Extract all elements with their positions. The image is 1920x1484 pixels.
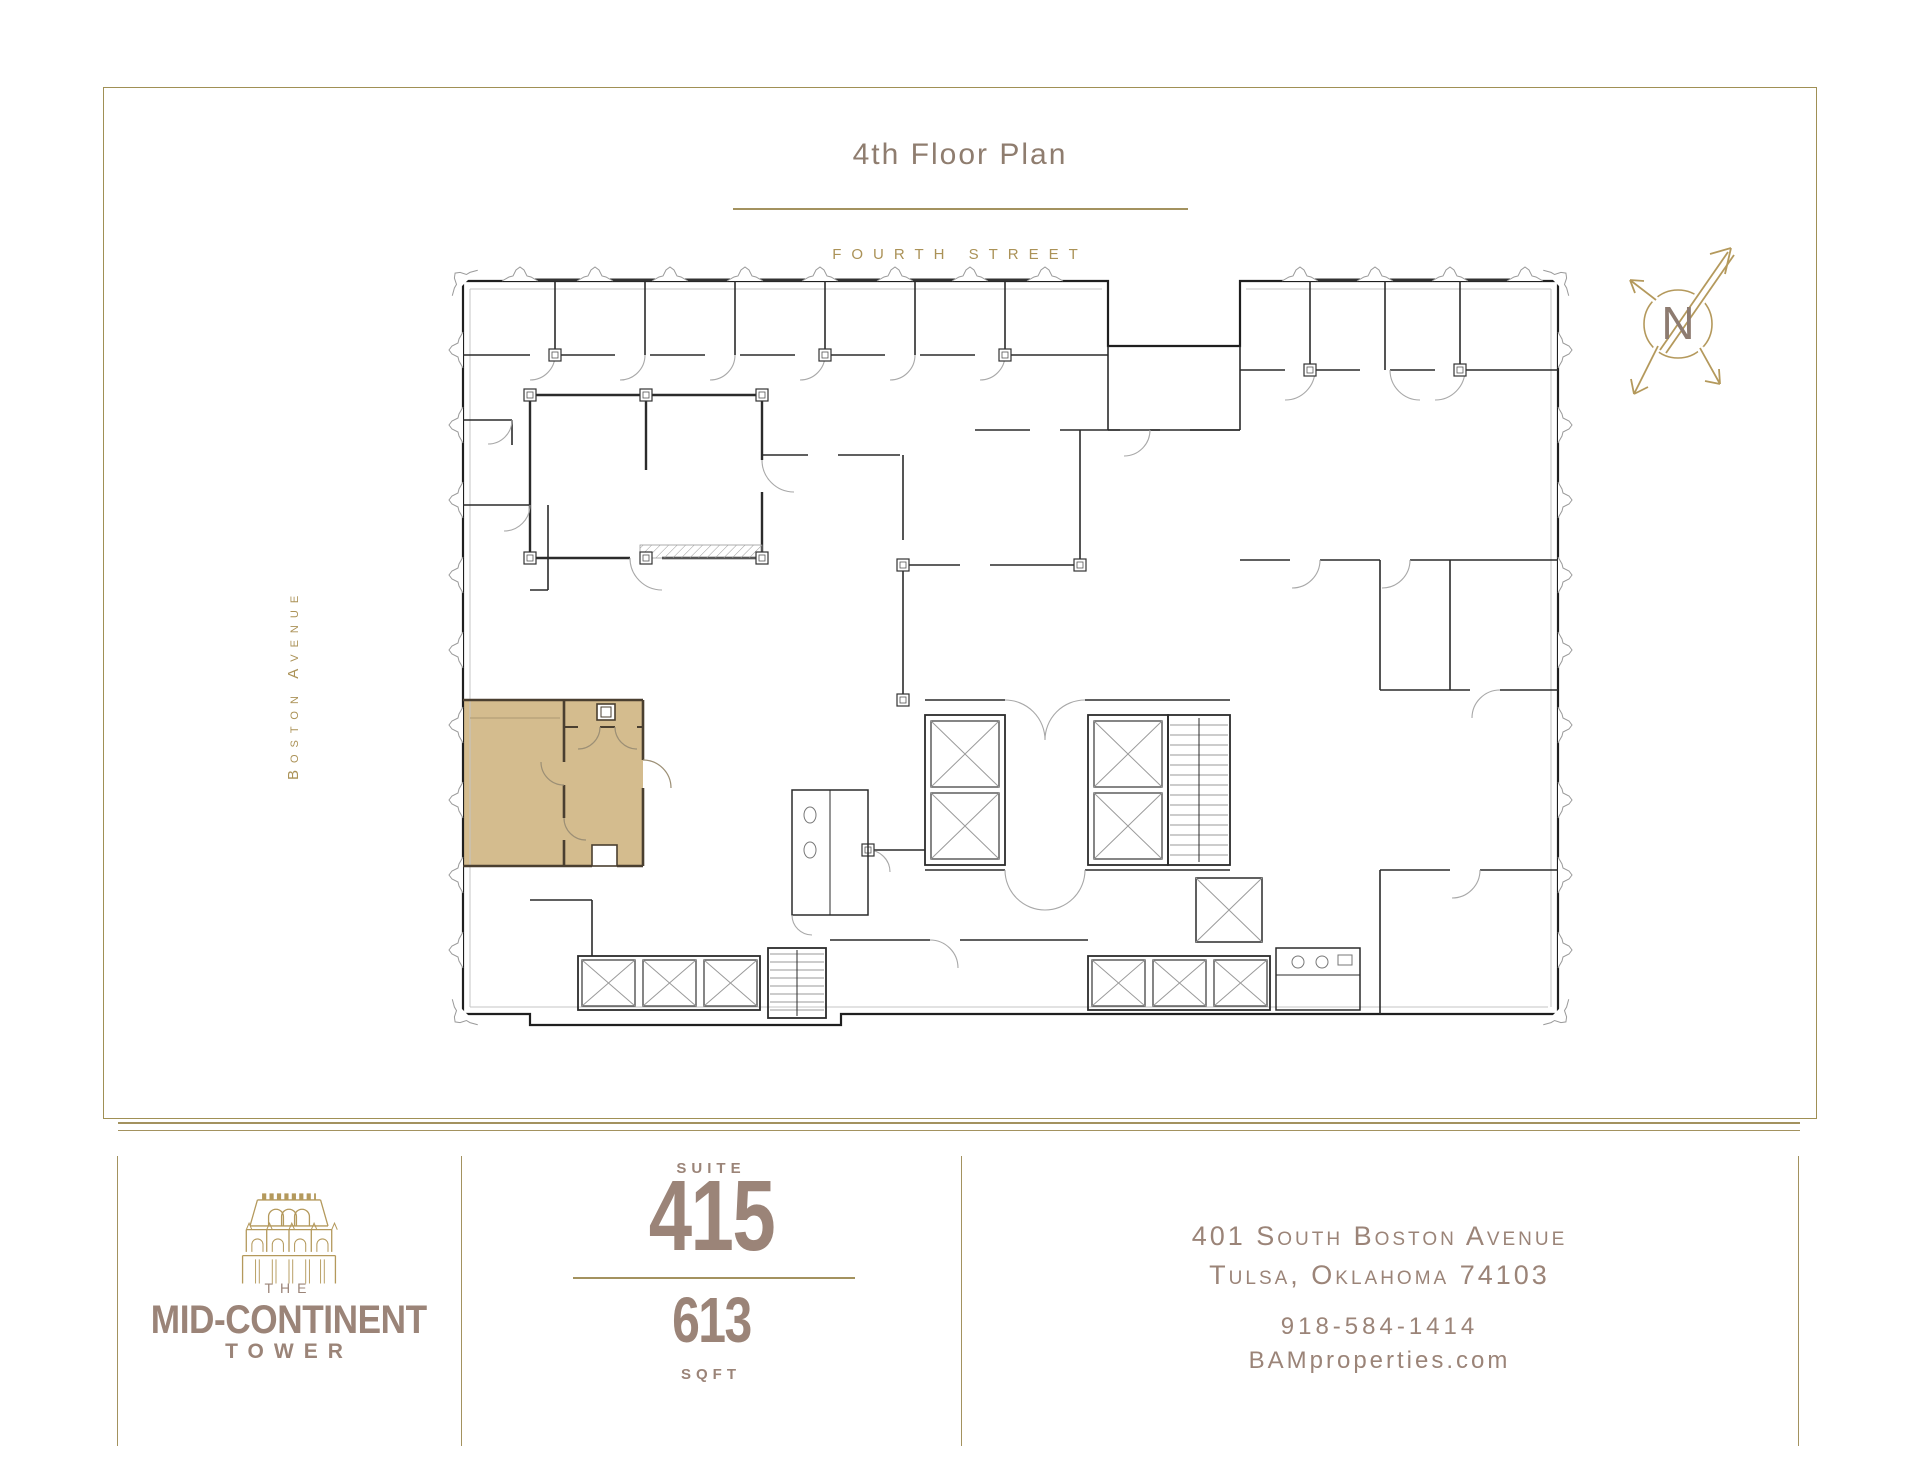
page-title: 4th Floor Plan [0,138,1920,172]
address-line-1: 401 South Boston Avenue [961,1221,1798,1252]
area-value-text: 613 [672,1288,751,1352]
logo-name: MID-CONTINENT [79,1298,499,1343]
footer-rule-thick [118,1122,1800,1124]
logo-tower: TOWER [119,1340,459,1364]
area-value: 613 [461,1288,961,1352]
elevator-bank-south-east [1088,956,1270,1010]
suite-415 [463,700,643,866]
compass-north-label: N [1661,297,1694,349]
restroom-south [1276,948,1360,1010]
plan-interior-walls [463,281,1558,1014]
suite-415-highlight [463,700,643,866]
plan-perimeter [442,260,1578,1034]
hatched-ledge [640,545,762,558]
logo-the: THE [119,1280,459,1296]
door-swings [488,355,1500,968]
stairwell-central [1168,715,1230,865]
elevator-core-west [925,715,1005,865]
street-label-boston-avenue: Boston Avenue [285,500,302,780]
phone-number: 918-584-1414 [961,1313,1798,1341]
footer-divider-3 [961,1156,962,1446]
suite-area-divider [573,1277,855,1279]
utility-shaft [1196,878,1262,942]
logo-name-text: MID-CONTINENT [151,1298,427,1343]
footer-rule-thin [118,1130,1800,1131]
inner-suite-walls [530,395,762,558]
pilasters [442,260,1578,1034]
compass-rose: N [1600,232,1770,422]
title-underline [733,208,1188,210]
website-link[interactable]: BAMproperties.com [961,1347,1798,1375]
floor-plan [463,281,1558,1030]
elevator-core-east [1088,715,1168,865]
address-line-2: Tulsa, Oklahoma 74103 [961,1260,1798,1291]
suite-number-text: 415 [648,1166,773,1266]
building-logo-icon [224,1186,354,1290]
area-label: SQFT [461,1366,961,1383]
footer-divider-4 [1798,1156,1799,1446]
suite-number: 415 [461,1166,961,1266]
restroom-central [792,790,868,935]
elevator-bank-south-west [578,956,760,1010]
